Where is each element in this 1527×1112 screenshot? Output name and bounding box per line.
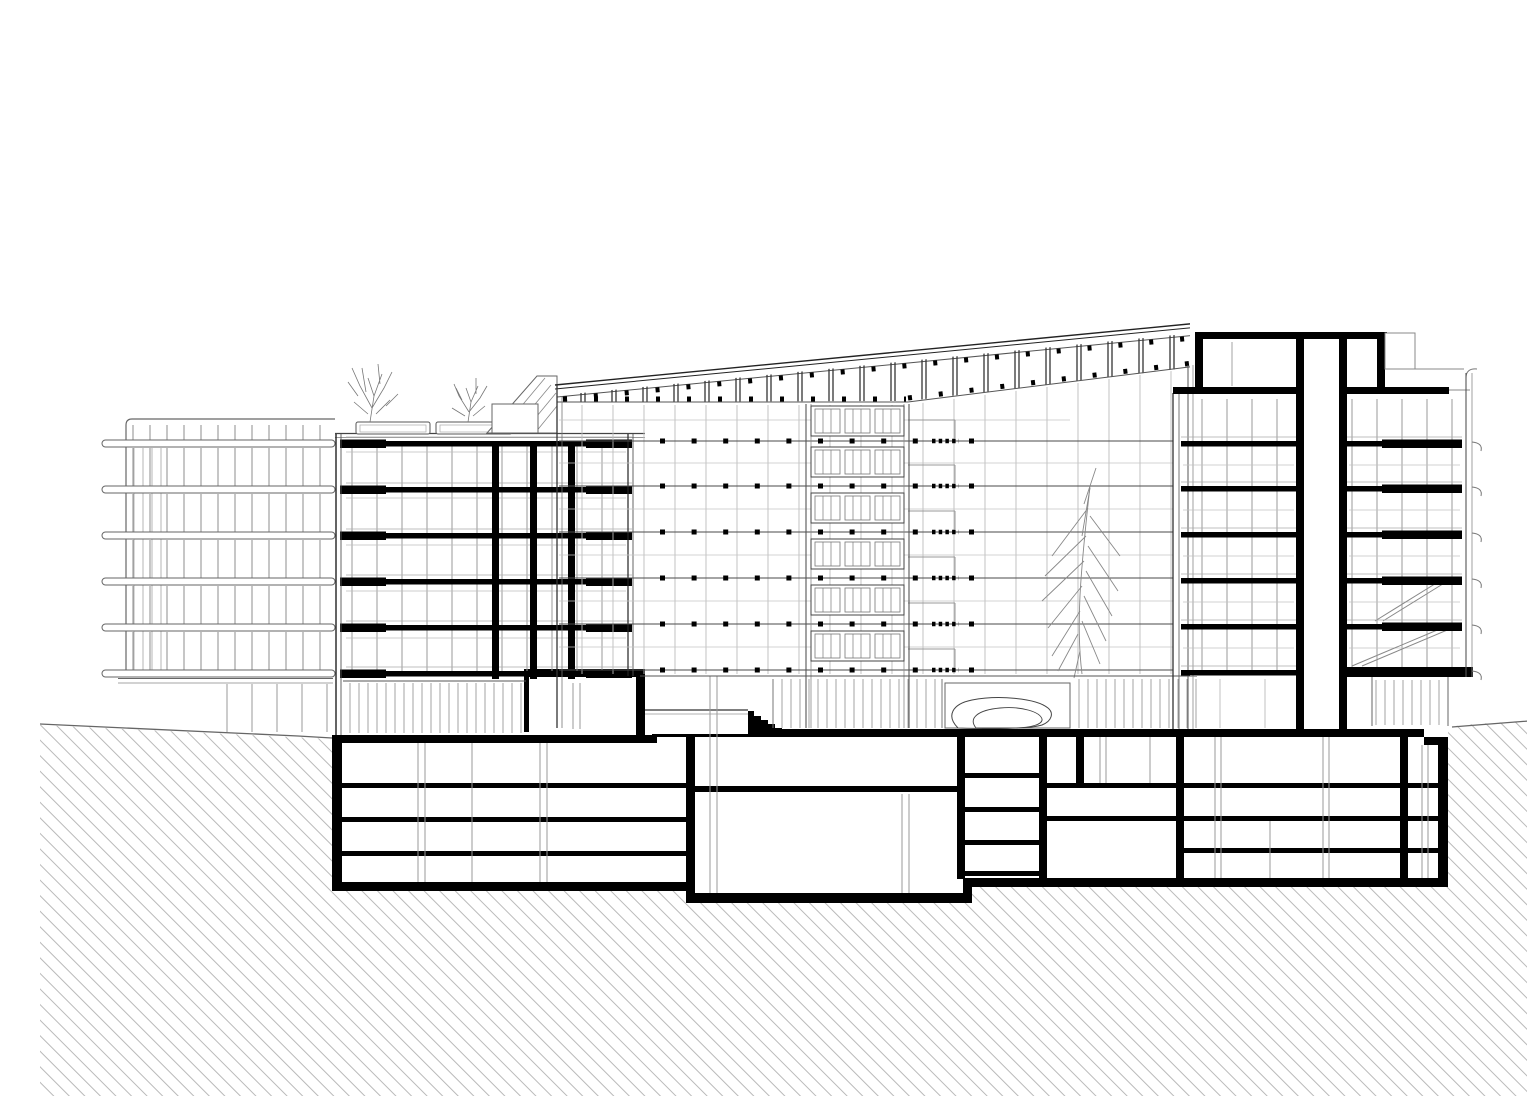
stair-core-wall bbox=[957, 729, 965, 879]
column bbox=[492, 441, 499, 679]
balcony-band bbox=[102, 440, 335, 447]
right-tower bbox=[1173, 316, 1481, 730]
ground-floor-glazing-right bbox=[1374, 680, 1446, 725]
architectural-section-drawing: Black-and-white longitudinal section thr… bbox=[40, 16, 1527, 1096]
basement-box bbox=[332, 728, 1448, 903]
elevator-core bbox=[1296, 332, 1347, 730]
atrium-block bbox=[555, 323, 1200, 729]
background-building-elevation bbox=[102, 419, 335, 732]
sculpture-blob bbox=[952, 698, 1052, 729]
column bbox=[530, 441, 537, 679]
skylight-wedge bbox=[487, 376, 557, 433]
rooftop-penthouse bbox=[1195, 332, 1387, 394]
ground-floor-glazing bbox=[343, 683, 526, 733]
entry-vestibule-upper bbox=[528, 674, 640, 734]
mezzanine-glazing bbox=[773, 679, 942, 728]
lowest-slab-cantilever bbox=[1347, 667, 1473, 677]
section-canvas: Black-and-white longitudinal section thr… bbox=[40, 16, 1527, 1096]
roof-terrace-shrubs bbox=[348, 364, 487, 422]
roof-setback-volume bbox=[1385, 333, 1415, 369]
stair-core-wall bbox=[1039, 729, 1047, 879]
